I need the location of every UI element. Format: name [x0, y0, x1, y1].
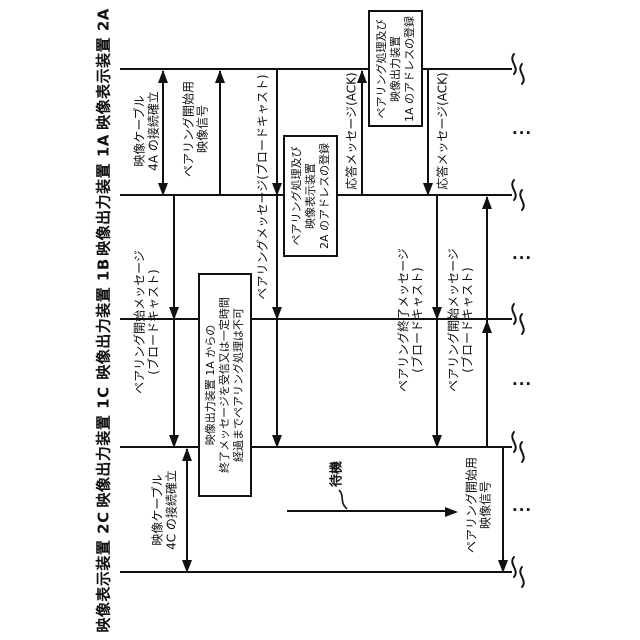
participant-label-1B-line: 映像出力装置 1B [96, 258, 113, 380]
process-box-1a-text-line: 映像表示装置 [304, 143, 318, 249]
standby-arrowhead [445, 507, 458, 517]
pairing-restriction-note-text: 映像出力装置 1A からの終了メッセージを受信又は一定時間経過までペアリング処理… [204, 297, 246, 473]
participant-label-1A: 映像出力装置 1A [96, 134, 113, 256]
pairing-start-video-c-line [502, 447, 504, 570]
cable-4c-connect-label-line: 4C の接続確立 [165, 470, 179, 550]
pairing-end-msg-1a-label: ペアリング終了メッセージ(ブロードキャスト) [398, 248, 425, 392]
pairing-start-msg-1a-arrowhead [169, 435, 179, 448]
process-box-1a-text: ペアリング処理及び映像表示装置2A のアドレスの登録 [290, 143, 332, 249]
continuation-dots-1: ... [512, 249, 532, 259]
pairing-end-msg-1a-line [436, 195, 438, 445]
pairing-start-msg-1c-label: ペアリング開始メッセージ(ブロードキャスト) [448, 248, 475, 392]
process-box-1a-text-line: ペアリング処理及び [290, 143, 304, 249]
cable-4a-connect-label-line: 4A の接続確立 [147, 91, 161, 171]
pairing-msg-2a-arrowhead [272, 435, 282, 448]
pairing-restriction-note-text-line: 終了メッセージを受信又は一定時間 [218, 297, 232, 473]
pairing-start-msg-1a-label-line: ペアリング開始メッセージ [134, 250, 148, 394]
pairing-start-msg-1a-label: ペアリング開始メッセージ(ブロードキャスト) [134, 250, 161, 394]
pairing-start-video-c-label-line: ペアリング開始用 [466, 457, 480, 553]
pairing-msg-2a-label-line: ペアリングメッセージ(ブロードキャスト) [256, 74, 270, 299]
ack-1a-to-2a-label-line: 応答メッセージ(ACK) [345, 72, 359, 189]
pairing-start-video-c-label: ペアリング開始用映像信号 [466, 457, 493, 553]
lifeline-2C [120, 571, 512, 573]
cable-4a-connect-label: 映像ケーブル4A の接続確立 [134, 91, 161, 171]
cable-4c-connect-label: 映像ケーブル4C の接続確立 [152, 470, 179, 550]
lifeline-break-2C [505, 551, 531, 595]
pairing-msg-2a-arrowhead [272, 183, 282, 196]
lifeline-break-2A [505, 48, 531, 92]
pairing-msg-2a-label: ペアリングメッセージ(ブロードキャスト) [256, 74, 270, 299]
continuation-dots-2: ... [512, 375, 532, 385]
continuation-dots-0: ... [512, 124, 532, 134]
pairing-start-msg-1c-label-line: ペアリング開始メッセージ [448, 248, 462, 392]
lifeline-2A [120, 68, 512, 70]
cable-4a-connect-label-line: 映像ケーブル [134, 91, 148, 171]
pairing-start-video-a-line [219, 71, 221, 195]
participant-label-1C: 映像出力装置 1C [96, 386, 113, 507]
ack-2a-to-1a-label-line: 応答メッセージ(ACK) [436, 72, 450, 189]
pairing-start-msg-1a-arrowhead [169, 307, 179, 320]
participant-label-1C-line: 映像出力装置 1C [96, 386, 113, 507]
ack-2a-to-1a-arrowhead [423, 183, 433, 196]
patent-sequence-diagram: 映像表示装置 2A映像出力装置 1A映像出力装置 1B映像出力装置 1C映像表示… [0, 0, 640, 640]
participant-label-2A: 映像表示装置 2A [96, 8, 113, 130]
pairing-end-msg-1a-label-line: (ブロードキャスト) [411, 248, 425, 392]
process-box-2a-text-line: ペアリング処理及び [375, 15, 389, 121]
process-box-1a-text-line: 2A のアドレスの登録 [318, 143, 332, 249]
pairing-end-msg-1a-label-line: ペアリング終了メッセージ [398, 248, 412, 392]
ack-1a-to-2a-line [361, 71, 363, 195]
cable-4a-connect-arrowhead [158, 70, 168, 83]
cable-4c-connect-arrowhead [182, 560, 192, 573]
pairing-start-video-a-label-line: ペアリング開始用 [183, 81, 197, 177]
pairing-msg-2a-line [276, 69, 278, 445]
participant-label-1A-line: 映像出力装置 1A [96, 134, 113, 256]
cable-4c-connect-line [186, 449, 188, 570]
pairing-start-msg-1c-label-line: (ブロードキャスト) [461, 248, 475, 392]
cable-4c-connect-label-line: 映像ケーブル [152, 470, 166, 550]
pairing-end-msg-1a-arrowhead [432, 307, 442, 320]
process-box-2a-text: ペアリング処理及び映像出力装置1A のアドレスの登録 [375, 15, 417, 121]
pairing-start-video-c-label-line: 映像信号 [479, 457, 493, 553]
pairing-start-video-a-arrowhead [215, 70, 225, 83]
pairing-start-msg-1c-arrowhead [482, 196, 492, 209]
ack-1a-to-2a-label: 応答メッセージ(ACK) [345, 72, 359, 189]
lifeline-break-1A [505, 174, 531, 218]
participant-label-2C-line: 映像表示装置 2C [96, 511, 113, 632]
participant-label-1B: 映像出力装置 1B [96, 258, 113, 380]
pairing-start-msg-1c-arrowhead [482, 320, 492, 333]
pairing-start-video-a-label: ペアリング開始用映像信号 [183, 81, 210, 177]
pairing-start-video-a-label-line: 映像信号 [196, 81, 210, 177]
pairing-msg-2a-arrowhead [272, 307, 282, 320]
lifeline-break-1C [505, 426, 531, 470]
standby-line [287, 510, 445, 512]
process-box-2a-text-line: 映像出力装置 [389, 15, 403, 121]
pairing-restriction-note-text-line: 経過までペアリング処理は不可 [232, 297, 246, 473]
standby-label-line: 待機 [326, 461, 345, 487]
pairing-end-msg-1a-arrowhead [432, 435, 442, 448]
cable-4a-connect-arrowhead [158, 183, 168, 196]
cable-4a-connect-line [162, 71, 164, 193]
lifeline-break-1B [505, 298, 531, 342]
ack-2a-to-1a-label: 応答メッセージ(ACK) [436, 72, 450, 189]
ack-2a-to-1a-line [427, 69, 429, 193]
participant-label-2A-line: 映像表示装置 2A [96, 8, 113, 130]
pairing-start-msg-1a-label-line: (ブロードキャスト) [147, 250, 161, 394]
standby-label: 待機 [326, 461, 345, 487]
pairing-restriction-note-text-line: 映像出力装置 1A からの [204, 297, 218, 473]
pairing-start-msg-1a-line [173, 195, 175, 445]
standby-leader-line [336, 489, 356, 511]
cable-4c-connect-arrowhead [182, 448, 192, 461]
pairing-start-video-c-arrowhead [498, 560, 508, 573]
participant-label-2C: 映像表示装置 2C [96, 511, 113, 632]
continuation-dots-3: ... [512, 501, 532, 511]
process-box-2a-text-line: 1A のアドレスの登録 [403, 15, 417, 121]
